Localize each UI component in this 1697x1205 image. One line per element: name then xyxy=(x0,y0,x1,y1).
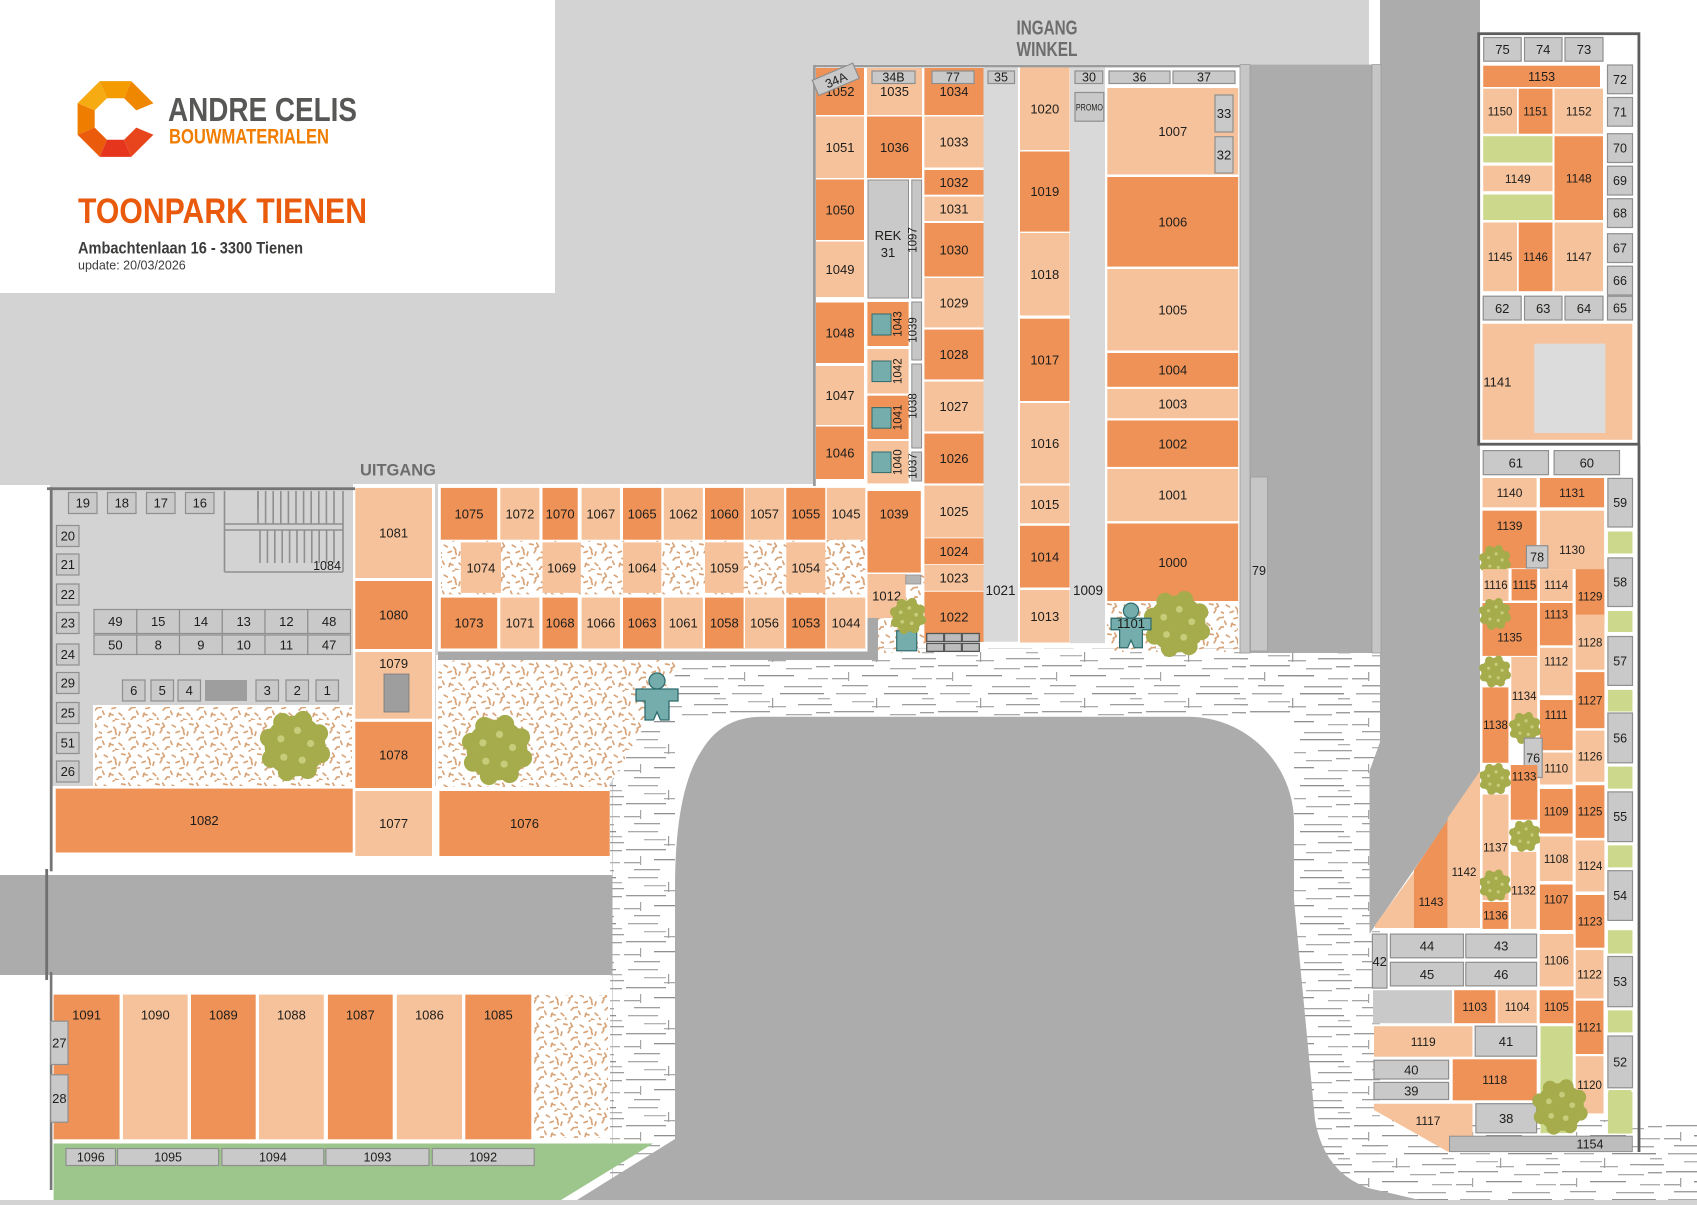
svg-text:1153: 1153 xyxy=(1528,70,1555,84)
svg-text:WINKEL: WINKEL xyxy=(1017,39,1078,61)
svg-text:ANDRE CELIS: ANDRE CELIS xyxy=(168,91,357,128)
svg-text:1134: 1134 xyxy=(1512,691,1537,703)
svg-text:19: 19 xyxy=(76,496,90,511)
svg-text:75: 75 xyxy=(1495,42,1509,57)
svg-text:64: 64 xyxy=(1577,301,1591,316)
svg-text:70: 70 xyxy=(1613,142,1627,156)
svg-text:1071: 1071 xyxy=(505,616,534,631)
svg-text:1014: 1014 xyxy=(1030,549,1059,564)
svg-text:1139: 1139 xyxy=(1497,519,1523,533)
svg-text:55: 55 xyxy=(1613,810,1627,824)
svg-text:5: 5 xyxy=(159,683,166,698)
svg-text:1123: 1123 xyxy=(1578,917,1603,929)
svg-text:1149: 1149 xyxy=(1505,172,1531,186)
svg-text:1117: 1117 xyxy=(1416,1114,1441,1128)
svg-text:1031: 1031 xyxy=(940,202,969,217)
svg-text:1145: 1145 xyxy=(1488,252,1513,264)
svg-text:1154: 1154 xyxy=(1577,1138,1604,1152)
svg-text:1146: 1146 xyxy=(1523,252,1548,264)
svg-text:1046: 1046 xyxy=(826,445,855,460)
svg-text:1015: 1015 xyxy=(1030,497,1059,512)
svg-text:1138: 1138 xyxy=(1483,720,1508,732)
svg-text:78: 78 xyxy=(1530,550,1544,564)
svg-text:25: 25 xyxy=(61,706,75,721)
svg-text:1062: 1062 xyxy=(669,507,698,522)
svg-text:57: 57 xyxy=(1613,655,1627,669)
svg-text:1032: 1032 xyxy=(940,175,969,190)
svg-text:1025: 1025 xyxy=(940,504,969,519)
svg-text:1009: 1009 xyxy=(1073,583,1103,598)
svg-text:1026: 1026 xyxy=(940,451,969,466)
svg-text:65: 65 xyxy=(1613,302,1627,316)
svg-text:1085: 1085 xyxy=(484,1008,513,1023)
svg-text:44: 44 xyxy=(1420,939,1434,954)
svg-text:71: 71 xyxy=(1613,105,1627,119)
svg-text:1050: 1050 xyxy=(826,202,855,217)
svg-text:1127: 1127 xyxy=(1578,695,1603,707)
svg-text:1021: 1021 xyxy=(985,583,1015,598)
svg-text:76: 76 xyxy=(1526,751,1540,765)
svg-text:1122: 1122 xyxy=(1577,969,1602,981)
svg-text:1023: 1023 xyxy=(940,571,969,586)
svg-text:1064: 1064 xyxy=(628,560,657,575)
svg-text:26: 26 xyxy=(61,764,75,779)
svg-text:1152: 1152 xyxy=(1566,105,1592,119)
svg-text:28: 28 xyxy=(52,1091,66,1106)
svg-text:1079: 1079 xyxy=(379,656,408,671)
svg-text:53: 53 xyxy=(1613,975,1627,989)
svg-text:46: 46 xyxy=(1494,967,1508,982)
svg-text:1131: 1131 xyxy=(1559,486,1585,500)
svg-text:1107: 1107 xyxy=(1544,894,1569,906)
svg-text:1020: 1020 xyxy=(1030,101,1059,116)
svg-text:16: 16 xyxy=(193,496,207,511)
svg-text:66: 66 xyxy=(1613,274,1627,288)
svg-text:1039: 1039 xyxy=(908,317,920,343)
svg-text:1093: 1093 xyxy=(363,1151,391,1165)
svg-text:1045: 1045 xyxy=(832,507,861,522)
svg-text:61: 61 xyxy=(1509,455,1523,470)
svg-text:1090: 1090 xyxy=(141,1008,170,1023)
svg-text:1105: 1105 xyxy=(1544,1002,1569,1014)
svg-text:BOUWMATERIALEN: BOUWMATERIALEN xyxy=(169,126,329,149)
svg-text:54: 54 xyxy=(1613,889,1627,903)
svg-text:1133: 1133 xyxy=(1512,772,1537,784)
svg-text:1115: 1115 xyxy=(1512,580,1536,592)
svg-text:1151: 1151 xyxy=(1523,106,1548,118)
svg-text:1142: 1142 xyxy=(1452,867,1477,879)
svg-text:1086: 1086 xyxy=(415,1008,444,1023)
svg-text:1018: 1018 xyxy=(1030,267,1059,282)
svg-text:1092: 1092 xyxy=(469,1151,497,1165)
svg-text:31: 31 xyxy=(881,245,895,260)
svg-text:6: 6 xyxy=(130,683,137,698)
svg-text:1088: 1088 xyxy=(277,1008,306,1023)
svg-text:43: 43 xyxy=(1494,939,1508,954)
svg-text:1006: 1006 xyxy=(1158,215,1187,230)
svg-text:77: 77 xyxy=(946,71,960,85)
svg-text:1137: 1137 xyxy=(1483,843,1508,855)
svg-text:1043: 1043 xyxy=(893,311,905,337)
svg-text:67: 67 xyxy=(1613,242,1627,256)
svg-text:9: 9 xyxy=(197,637,204,652)
svg-text:1135: 1135 xyxy=(1497,633,1522,645)
svg-text:TOONPARK TIENEN: TOONPARK TIENEN xyxy=(78,192,367,231)
svg-text:PROMO: PROMO xyxy=(1076,103,1103,114)
svg-text:1081: 1081 xyxy=(379,526,408,541)
svg-text:8: 8 xyxy=(155,637,162,652)
svg-text:1012: 1012 xyxy=(872,589,901,604)
svg-text:1104: 1104 xyxy=(1505,1002,1530,1014)
svg-text:1068: 1068 xyxy=(546,616,575,631)
svg-text:1077: 1077 xyxy=(379,816,408,831)
svg-text:41: 41 xyxy=(1499,1034,1513,1049)
svg-text:1140: 1140 xyxy=(1497,486,1523,500)
svg-text:1028: 1028 xyxy=(940,347,969,362)
svg-text:1084: 1084 xyxy=(313,559,341,573)
svg-text:1147: 1147 xyxy=(1566,250,1592,264)
svg-text:4: 4 xyxy=(186,683,193,698)
svg-text:59: 59 xyxy=(1613,496,1627,510)
svg-text:1075: 1075 xyxy=(455,507,484,522)
svg-text:1051: 1051 xyxy=(826,140,855,155)
svg-text:1005: 1005 xyxy=(1158,302,1187,317)
svg-text:32: 32 xyxy=(1217,148,1231,163)
svg-text:63: 63 xyxy=(1536,301,1550,316)
svg-text:47: 47 xyxy=(322,637,336,652)
svg-text:30: 30 xyxy=(1082,71,1096,85)
svg-text:1069: 1069 xyxy=(547,560,576,575)
svg-text:18: 18 xyxy=(115,496,129,511)
svg-text:1: 1 xyxy=(324,683,331,698)
svg-text:1089: 1089 xyxy=(209,1008,238,1023)
svg-text:UITGANG: UITGANG xyxy=(360,462,436,480)
svg-text:1027: 1027 xyxy=(940,399,969,414)
svg-text:39: 39 xyxy=(1404,1084,1418,1099)
svg-text:1091: 1091 xyxy=(72,1008,101,1023)
svg-text:1074: 1074 xyxy=(466,560,495,575)
svg-text:1129: 1129 xyxy=(1578,591,1603,603)
svg-text:1002: 1002 xyxy=(1158,436,1187,451)
svg-text:13: 13 xyxy=(236,614,250,629)
svg-text:1034: 1034 xyxy=(940,84,969,99)
svg-text:1029: 1029 xyxy=(940,295,969,310)
svg-text:1106: 1106 xyxy=(1544,955,1569,967)
svg-text:1148: 1148 xyxy=(1566,171,1592,185)
svg-text:1038: 1038 xyxy=(908,393,920,419)
svg-text:1013: 1013 xyxy=(1030,609,1059,624)
svg-text:1037: 1037 xyxy=(908,453,920,479)
svg-text:1055: 1055 xyxy=(791,507,820,522)
svg-text:1000: 1000 xyxy=(1158,555,1187,570)
svg-text:12: 12 xyxy=(279,614,293,629)
svg-text:1047: 1047 xyxy=(826,388,855,403)
svg-text:20: 20 xyxy=(61,529,75,544)
svg-text:REK: REK xyxy=(875,228,902,243)
svg-text:58: 58 xyxy=(1613,576,1627,590)
svg-text:1065: 1065 xyxy=(628,507,657,522)
svg-text:36: 36 xyxy=(1133,71,1147,85)
svg-text:1063: 1063 xyxy=(628,616,657,631)
svg-text:1143: 1143 xyxy=(1419,897,1444,909)
svg-text:1141: 1141 xyxy=(1483,375,1511,390)
svg-text:35: 35 xyxy=(994,71,1008,85)
svg-text:1097: 1097 xyxy=(908,227,920,253)
svg-text:1061: 1061 xyxy=(669,616,698,631)
svg-text:1116: 1116 xyxy=(1484,580,1508,592)
svg-text:1095: 1095 xyxy=(154,1151,182,1165)
svg-text:1121: 1121 xyxy=(1577,1023,1602,1035)
svg-text:1057: 1057 xyxy=(750,507,779,522)
svg-text:1041: 1041 xyxy=(893,405,905,431)
svg-text:1059: 1059 xyxy=(710,560,739,575)
svg-text:11: 11 xyxy=(280,637,294,652)
svg-text:1035: 1035 xyxy=(880,84,909,99)
svg-text:1019: 1019 xyxy=(1030,184,1059,199)
svg-text:1130: 1130 xyxy=(1559,543,1585,557)
svg-text:1094: 1094 xyxy=(259,1151,287,1165)
svg-text:17: 17 xyxy=(154,496,168,511)
svg-text:10: 10 xyxy=(236,637,250,652)
svg-text:1001: 1001 xyxy=(1158,488,1187,503)
svg-text:51: 51 xyxy=(61,736,75,751)
svg-text:INGANG: INGANG xyxy=(1017,18,1078,40)
svg-text:1103: 1103 xyxy=(1462,1002,1487,1014)
svg-text:40: 40 xyxy=(1404,1062,1418,1077)
svg-text:1049: 1049 xyxy=(826,262,855,277)
svg-text:1024: 1024 xyxy=(940,544,969,559)
svg-text:1042: 1042 xyxy=(893,358,905,384)
svg-text:1110: 1110 xyxy=(1544,764,1568,776)
svg-text:45: 45 xyxy=(1420,967,1434,982)
svg-text:22: 22 xyxy=(61,587,75,602)
svg-text:1033: 1033 xyxy=(940,135,969,150)
svg-text:37: 37 xyxy=(1197,71,1211,85)
svg-text:1114: 1114 xyxy=(1544,580,1568,592)
svg-text:1066: 1066 xyxy=(586,616,615,631)
svg-text:1004: 1004 xyxy=(1158,363,1187,378)
svg-text:27: 27 xyxy=(52,1036,66,1051)
svg-text:1078: 1078 xyxy=(379,748,408,763)
svg-text:60: 60 xyxy=(1580,455,1594,470)
svg-text:1053: 1053 xyxy=(791,616,820,631)
svg-text:50: 50 xyxy=(108,637,122,652)
svg-text:1073: 1073 xyxy=(455,616,484,631)
svg-text:24: 24 xyxy=(61,647,75,662)
svg-text:1108: 1108 xyxy=(1544,854,1569,866)
svg-text:21: 21 xyxy=(61,557,75,572)
svg-text:56: 56 xyxy=(1613,731,1627,745)
svg-text:49: 49 xyxy=(108,614,122,629)
svg-text:Ambachtenlaan 16 - 3300 Tienen: Ambachtenlaan 16 - 3300 Tienen xyxy=(78,239,303,258)
svg-text:1022: 1022 xyxy=(940,610,969,625)
svg-text:1048: 1048 xyxy=(826,325,855,340)
svg-text:1136: 1136 xyxy=(1483,911,1508,923)
svg-text:1096: 1096 xyxy=(77,1151,105,1165)
svg-text:1016: 1016 xyxy=(1030,436,1059,451)
svg-text:1054: 1054 xyxy=(791,560,820,575)
svg-text:52: 52 xyxy=(1613,1055,1627,1069)
svg-text:48: 48 xyxy=(322,614,336,629)
svg-text:1150: 1150 xyxy=(1488,106,1513,118)
svg-text:1036: 1036 xyxy=(880,140,909,155)
svg-text:34B: 34B xyxy=(882,71,904,85)
svg-text:69: 69 xyxy=(1613,174,1627,188)
svg-text:1082: 1082 xyxy=(190,813,219,828)
svg-text:15: 15 xyxy=(151,614,165,629)
svg-text:1067: 1067 xyxy=(586,507,615,522)
svg-text:1017: 1017 xyxy=(1030,353,1059,368)
svg-text:2: 2 xyxy=(294,683,301,698)
svg-text:1132: 1132 xyxy=(1511,886,1536,898)
svg-text:1128: 1128 xyxy=(1578,637,1603,649)
svg-text:1080: 1080 xyxy=(379,608,408,623)
svg-text:79: 79 xyxy=(1252,564,1266,578)
svg-text:72: 72 xyxy=(1613,73,1627,87)
svg-text:1126: 1126 xyxy=(1578,751,1603,763)
svg-text:1072: 1072 xyxy=(505,507,534,522)
svg-text:1058: 1058 xyxy=(710,616,739,631)
svg-text:33: 33 xyxy=(1217,106,1231,121)
svg-text:1119: 1119 xyxy=(1411,1035,1436,1049)
svg-text:1007: 1007 xyxy=(1158,124,1187,139)
svg-text:1039: 1039 xyxy=(880,506,909,521)
svg-text:3: 3 xyxy=(264,683,271,698)
svg-text:68: 68 xyxy=(1613,207,1627,221)
svg-text:1044: 1044 xyxy=(832,616,861,631)
svg-text:73: 73 xyxy=(1577,42,1591,57)
svg-text:1076: 1076 xyxy=(510,816,539,831)
svg-text:1003: 1003 xyxy=(1158,396,1187,411)
svg-text:42: 42 xyxy=(1372,954,1386,969)
svg-text:1112: 1112 xyxy=(1544,657,1568,669)
svg-text:1070: 1070 xyxy=(546,507,575,522)
svg-text:1109: 1109 xyxy=(1544,806,1569,818)
svg-text:23: 23 xyxy=(61,616,75,631)
svg-text:1060: 1060 xyxy=(710,507,739,522)
svg-text:1125: 1125 xyxy=(1578,807,1603,819)
svg-text:1030: 1030 xyxy=(940,242,969,257)
svg-text:1056: 1056 xyxy=(750,616,779,631)
svg-text:1111: 1111 xyxy=(1545,710,1568,722)
svg-text:38: 38 xyxy=(1499,1111,1513,1126)
svg-text:29: 29 xyxy=(61,676,75,691)
svg-text:update: 20/03/2026: update: 20/03/2026 xyxy=(78,259,186,273)
svg-text:1118: 1118 xyxy=(1482,1073,1507,1087)
svg-text:1113: 1113 xyxy=(1544,609,1568,621)
svg-text:1101: 1101 xyxy=(1117,616,1145,631)
svg-text:74: 74 xyxy=(1536,42,1550,57)
svg-text:1087: 1087 xyxy=(346,1008,375,1023)
svg-text:1124: 1124 xyxy=(1578,861,1603,873)
svg-text:14: 14 xyxy=(194,614,208,629)
svg-text:62: 62 xyxy=(1495,301,1509,316)
svg-text:1040: 1040 xyxy=(893,449,905,475)
